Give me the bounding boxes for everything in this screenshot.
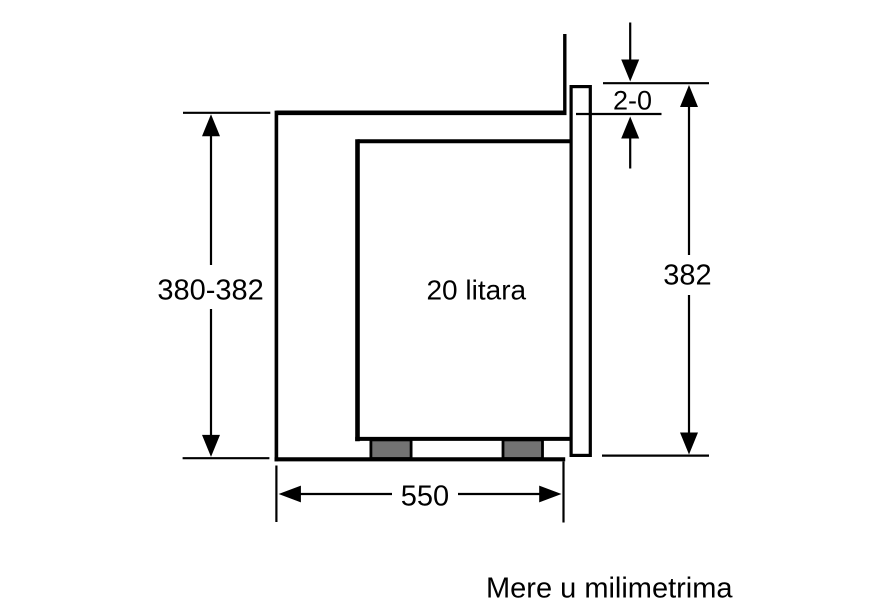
svg-text:Mere u milimetrima: Mere u milimetrima <box>486 573 733 605</box>
svg-text:382: 382 <box>663 259 711 291</box>
svg-text:2-0: 2-0 <box>613 86 652 116</box>
svg-text:550: 550 <box>401 481 449 513</box>
svg-text:380-382: 380-382 <box>157 275 263 307</box>
svg-text:20 litara: 20 litara <box>426 274 526 305</box>
